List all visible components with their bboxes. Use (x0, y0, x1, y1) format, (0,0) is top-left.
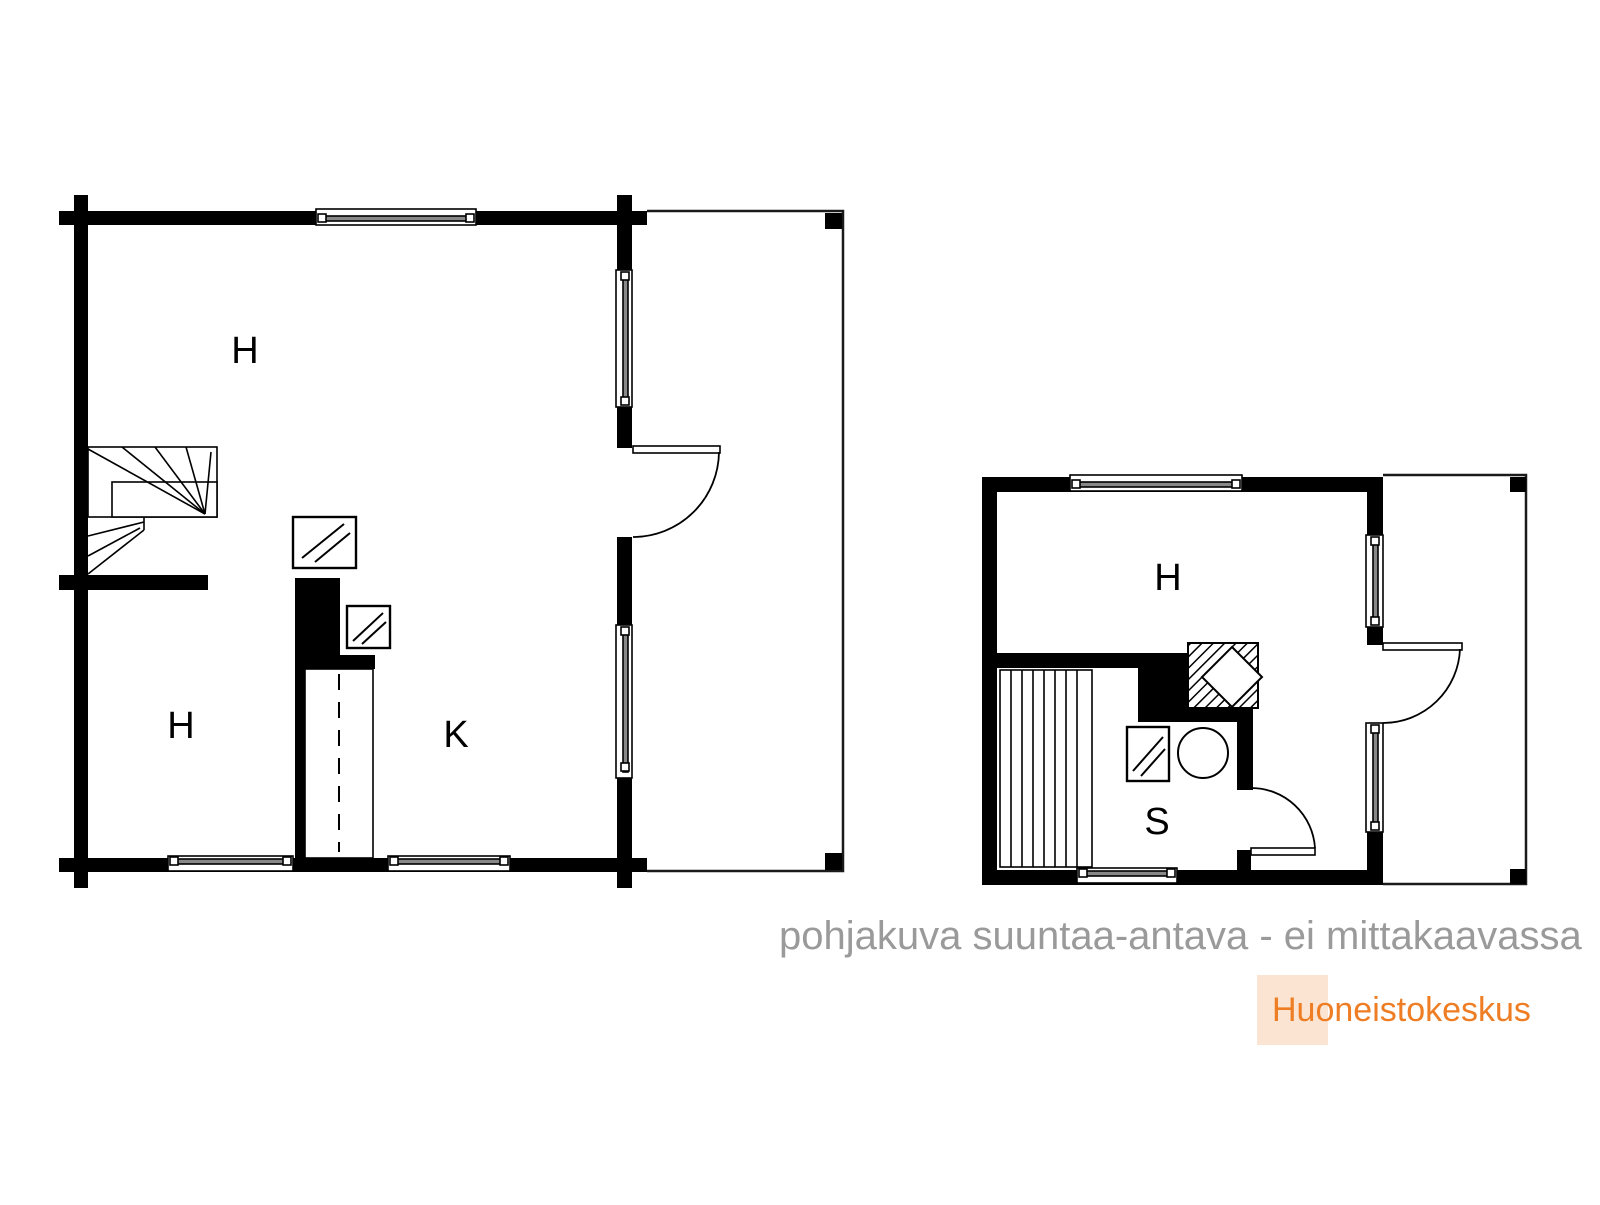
sauna-room-door-leaf (1251, 848, 1315, 855)
staircase (88, 447, 217, 574)
room-label-h-lower: H (167, 705, 194, 747)
fireplace-symbol-large (293, 517, 356, 568)
wall-interior (59, 575, 208, 590)
sauna-terrace-post-top (1510, 477, 1526, 492)
sauna-benches (1000, 670, 1092, 867)
main-floor-plan: H H K (59, 195, 843, 888)
sauna-terrace-post-bottom (1510, 869, 1526, 884)
sauna-window-right-upper (1366, 535, 1383, 627)
disclaimer-caption: pohjakuva suuntaa-antava - ei mittakaava… (779, 914, 1582, 959)
sauna-wall-door-jamb (1237, 722, 1253, 790)
room-label-k: K (443, 714, 468, 756)
window-right-upper (616, 270, 632, 407)
sauna-wall-right-seg3 (1367, 832, 1383, 885)
sauna-stove (1188, 643, 1262, 708)
sauna-window-top (1070, 475, 1242, 491)
door-swing-arc (633, 452, 719, 537)
sauna-wall-right-seg2 (1367, 627, 1383, 645)
sauna-floor-plan: H S (982, 475, 1526, 885)
sauna-wall-door-stub (1237, 850, 1251, 870)
chimney-assembly (293, 517, 390, 858)
huoneistokeskus-logo: Huoneistokeskus (1272, 991, 1531, 1030)
sauna-room-label-s: S (1144, 801, 1169, 843)
sauna-window-bottom (1077, 868, 1177, 883)
terrace-post-bottom (825, 853, 842, 870)
chimney-ledge (295, 655, 375, 669)
wall-bottom (59, 858, 647, 872)
wall-right-seg1 (617, 195, 632, 270)
closet-wall (295, 669, 305, 858)
sauna-terrace-outline (1383, 475, 1526, 884)
sauna-wall-right-seg1 (1367, 477, 1383, 535)
wall-left (74, 195, 88, 888)
sauna-terrace-door (1383, 643, 1462, 723)
window-right-lower (616, 625, 632, 778)
wall-right-seg3 (617, 537, 632, 625)
terrace-post-top (825, 213, 842, 229)
fireplace-symbol-small (347, 606, 390, 648)
windows (168, 209, 632, 871)
entrance-door (633, 446, 720, 537)
window-top (316, 209, 476, 225)
window-bottom-right (388, 856, 510, 871)
water-heater-symbol (1127, 727, 1169, 781)
window-bottom-left (168, 856, 293, 871)
terrace-outline (647, 211, 843, 871)
sauna-room-label-h: H (1154, 557, 1181, 599)
sauna-terrace-door-leaf (1383, 643, 1462, 650)
sauna-room-door (1251, 788, 1315, 855)
wall-right-seg4 (617, 778, 632, 888)
sauna-wall-interior (982, 653, 1187, 668)
room-label-h-upper: H (231, 330, 258, 372)
wash-basin (1178, 728, 1228, 778)
wall-right-seg2 (617, 407, 632, 448)
sauna-terrace-door-arc (1383, 649, 1460, 723)
sauna-window-right-lower (1366, 723, 1383, 832)
sauna-wall-left (982, 477, 997, 885)
sauna-room-door-arc (1251, 788, 1315, 848)
sauna-wall-bottom (982, 870, 1383, 885)
door-leaf (633, 446, 720, 453)
